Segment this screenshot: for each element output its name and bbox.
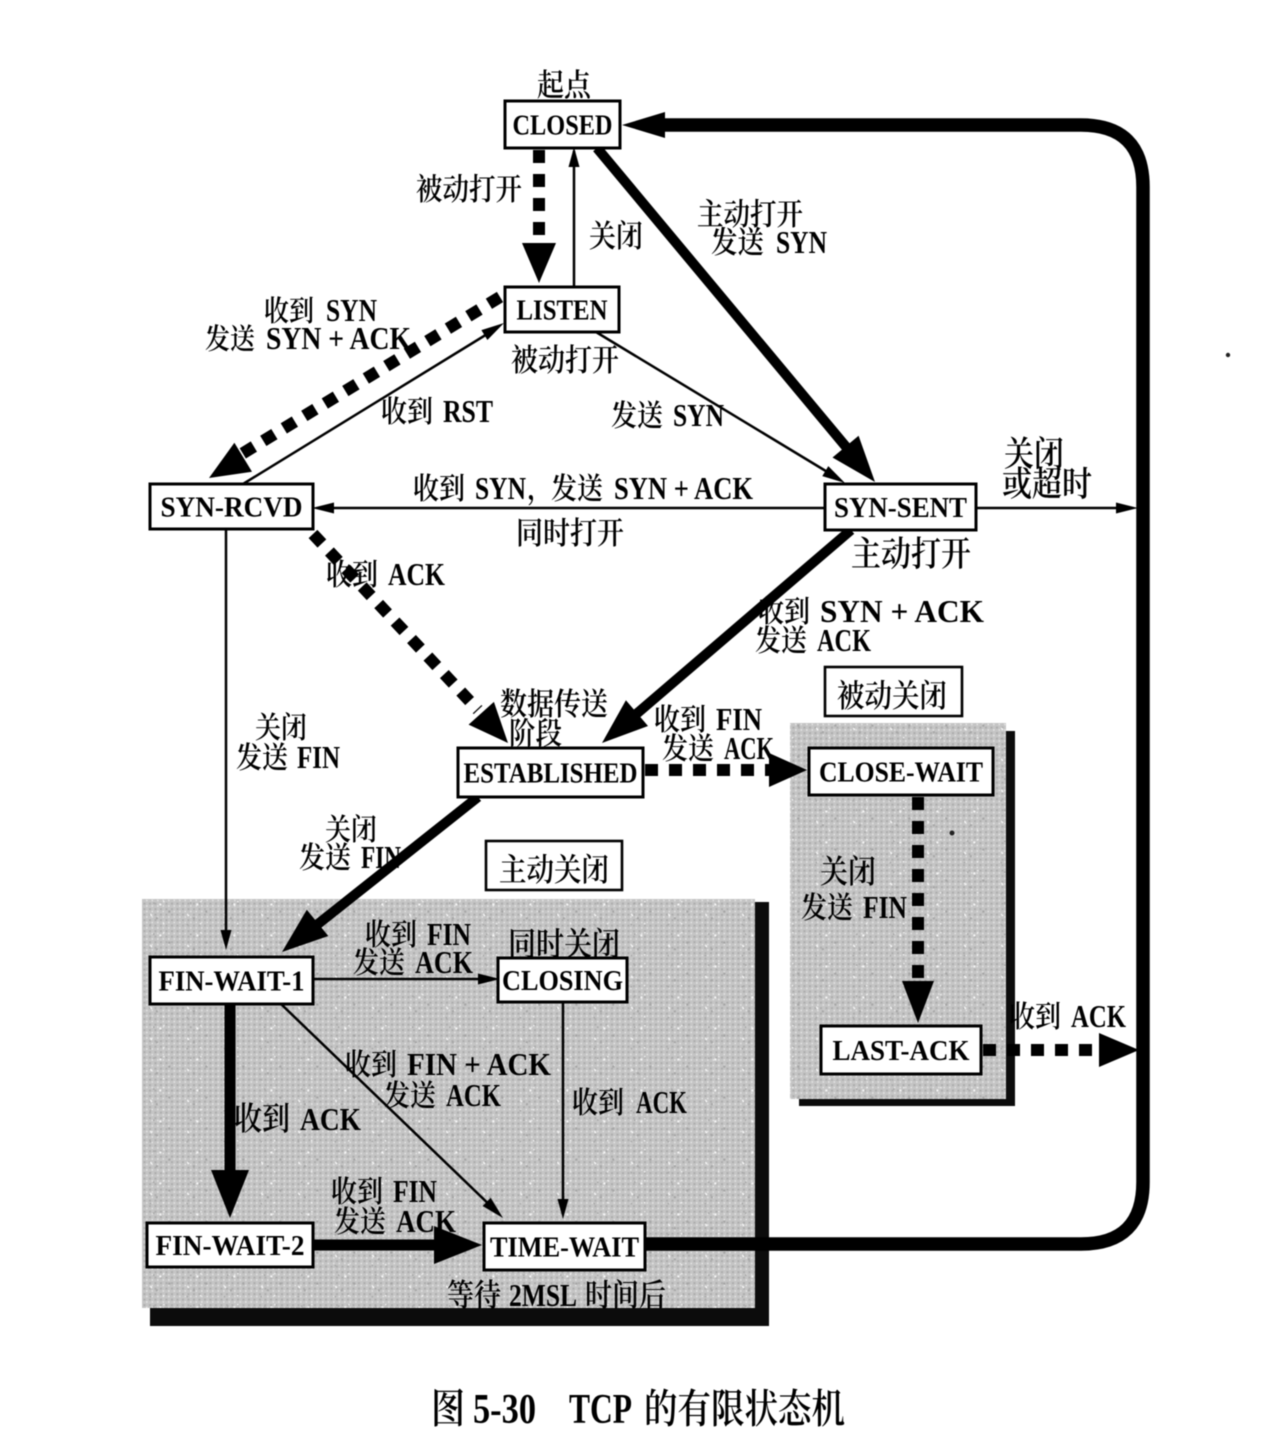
- svg-text:2MSL: 2MSL: [509, 1277, 577, 1313]
- svg-text:ACK: ACK: [724, 730, 774, 766]
- svg-text:CLOSED: CLOSED: [513, 109, 613, 141]
- svg-text:CLOSE-WAIT: CLOSE-WAIT: [819, 756, 983, 788]
- svg-text:SYN: SYN: [475, 470, 526, 506]
- svg-text:ACK: ACK: [636, 1084, 687, 1120]
- svg-text:SYN: SYN: [776, 224, 827, 260]
- svg-text:5-30: 5-30: [473, 1386, 536, 1433]
- svg-text:RST: RST: [443, 393, 493, 429]
- svg-text:SYN + ACK: SYN + ACK: [614, 470, 753, 506]
- svg-text:FIN: FIN: [361, 839, 401, 875]
- svg-text:TCP: TCP: [569, 1386, 632, 1433]
- svg-text:FIN: FIN: [297, 739, 340, 775]
- svg-text:ESTABLISHED: ESTABLISHED: [464, 757, 638, 789]
- svg-text:ACK: ACK: [396, 1203, 456, 1239]
- svg-text:ACK: ACK: [300, 1101, 361, 1137]
- svg-text:LISTEN: LISTEN: [517, 294, 608, 326]
- svg-text:ACK: ACK: [388, 556, 445, 592]
- svg-text:FIN-WAIT-2: FIN-WAIT-2: [156, 1230, 305, 1262]
- svg-text:TIME-WAIT: TIME-WAIT: [490, 1231, 639, 1263]
- svg-text:FIN-WAIT-1: FIN-WAIT-1: [159, 965, 305, 997]
- svg-text:CLOSING: CLOSING: [502, 965, 623, 997]
- svg-text:SYN-SENT: SYN-SENT: [834, 492, 967, 524]
- svg-text:SYN-RCVD: SYN-RCVD: [161, 491, 303, 523]
- svg-text:SYN: SYN: [673, 397, 724, 433]
- svg-text:ACK: ACK: [446, 1077, 501, 1113]
- svg-text:FIN: FIN: [863, 889, 907, 925]
- svg-text:LAST-ACK: LAST-ACK: [833, 1035, 970, 1067]
- svg-text:ACK: ACK: [817, 622, 871, 658]
- svg-text:ACK: ACK: [415, 944, 473, 980]
- svg-text:ACK: ACK: [1071, 998, 1126, 1034]
- svg-text:SYN + ACK: SYN + ACK: [266, 320, 411, 356]
